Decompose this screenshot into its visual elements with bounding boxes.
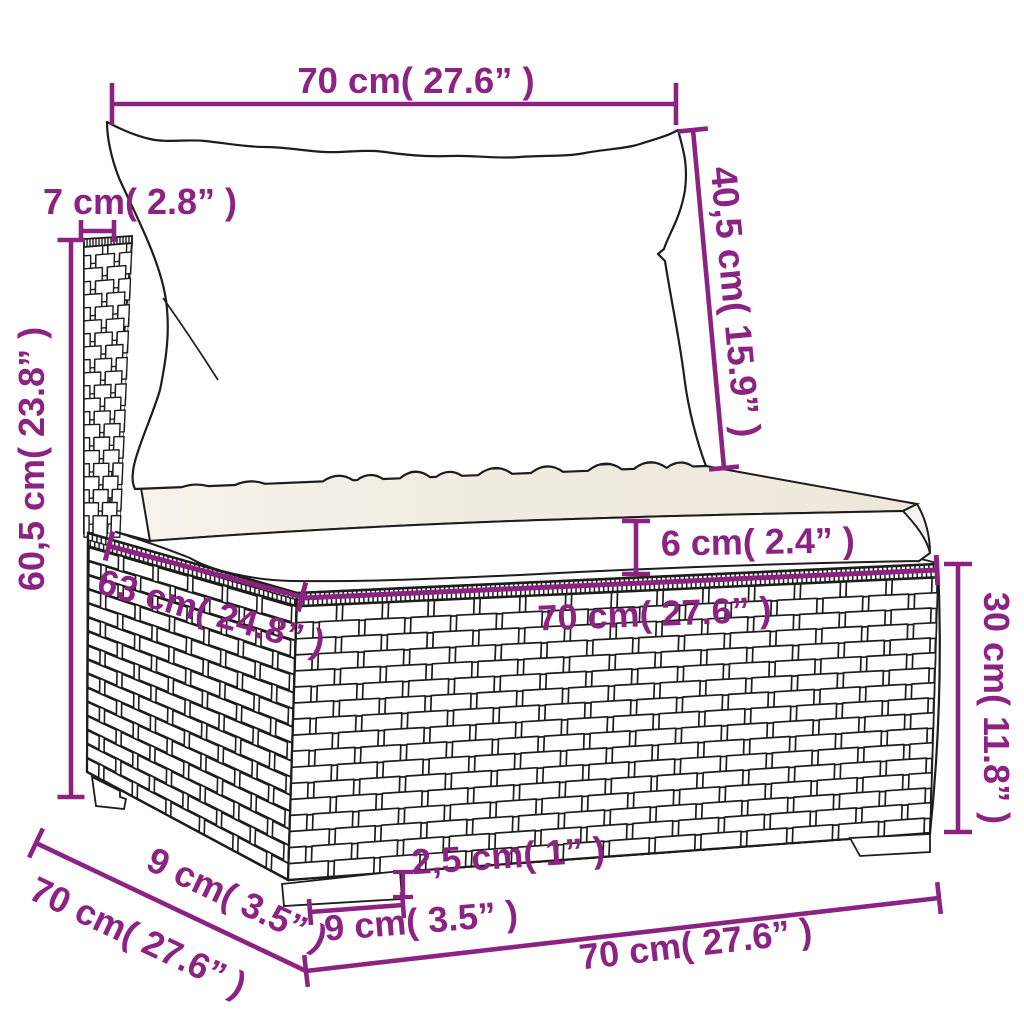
svg-text:6 cm( 2.4” ): 6 cm( 2.4” ) xyxy=(660,519,855,563)
svg-text:70 cm( 27.6” ): 70 cm( 27.6” ) xyxy=(297,60,534,101)
svg-text:60,5 cm( 23.8” ): 60,5 cm( 23.8” ) xyxy=(11,327,52,591)
svg-text:30 cm( 11.8” ): 30 cm( 11.8” ) xyxy=(976,592,1017,824)
svg-text:7 cm( 2.8” ): 7 cm( 2.8” ) xyxy=(43,181,237,222)
